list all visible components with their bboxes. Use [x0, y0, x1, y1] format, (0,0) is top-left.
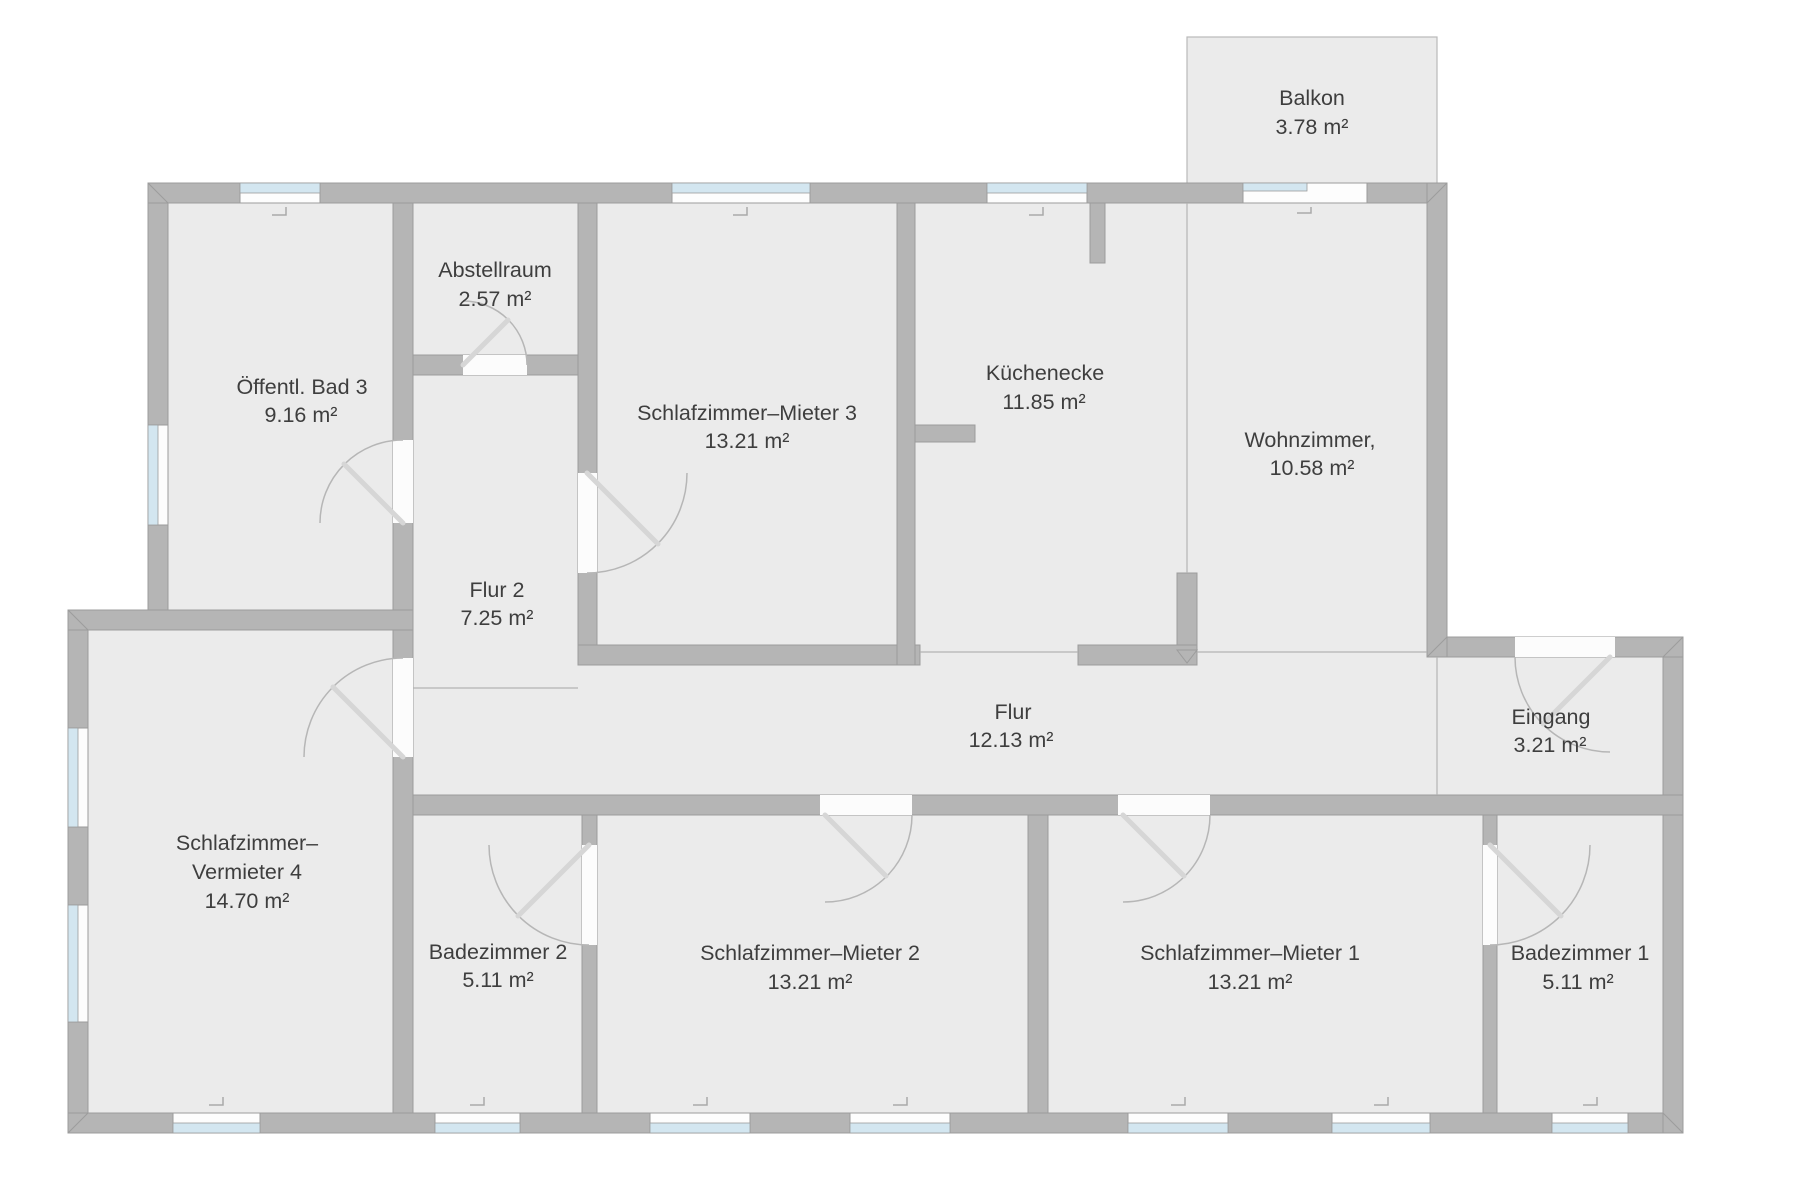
room-area-label: 2.57 m²	[459, 287, 532, 311]
window-symbol	[68, 728, 88, 827]
window-symbol	[240, 183, 320, 203]
room-name-label: Badezimmer 2	[429, 940, 568, 964]
room-area-label: 7.25 m²	[461, 606, 534, 630]
window-symbol	[435, 1113, 520, 1133]
floor-plan-page: Balkon 3.78 m² Öffentl. Bad 3 9.16 m² Ab…	[0, 0, 1802, 1183]
window-symbol	[1332, 1113, 1430, 1133]
window-symbol	[650, 1113, 750, 1133]
window-symbol	[987, 183, 1087, 203]
room-area-label: 5.11 m²	[462, 968, 533, 992]
balcony-outline	[1187, 37, 1437, 185]
room-area-label: 3.21 m²	[1514, 733, 1587, 757]
room-area-label: 10.58 m²	[1270, 456, 1355, 480]
room-area-label: 11.85 m²	[1002, 390, 1085, 414]
room-name-label: Schlafzimmer–Mieter 3	[637, 401, 857, 425]
room-area-label: 3.78 m²	[1276, 115, 1349, 139]
room-name-label: Schlafzimmer–Mieter 2	[700, 941, 920, 965]
room-name-label: Badezimmer 1	[1511, 941, 1650, 965]
room-name-label: Abstellraum	[438, 258, 552, 282]
room-name-label: Balkon	[1279, 86, 1345, 110]
room-area-label: 13.21 m²	[768, 970, 853, 994]
room-name-label: Eingang	[1512, 705, 1591, 729]
room-name-label: Wohnzimmer,	[1244, 428, 1375, 452]
room-name-label: Vermieter 4	[192, 860, 302, 884]
window-symbol	[850, 1113, 950, 1133]
room-area-label: 9.16 m²	[265, 403, 338, 427]
window-symbol	[148, 425, 168, 525]
window-symbol	[68, 905, 88, 1022]
room-area-label: 13.21 m²	[1208, 970, 1293, 994]
room-area-label: 14.70 m²	[205, 889, 290, 913]
window-symbol	[173, 1113, 260, 1133]
room-name-label: Küchenecke	[986, 361, 1104, 385]
room-area-label: 13.21 m²	[705, 429, 790, 453]
room-name-label: Schlafzimmer–Mieter 1	[1140, 941, 1360, 965]
room-name-label: Öffentl. Bad 3	[236, 375, 367, 399]
window-symbol	[1552, 1113, 1628, 1133]
room-name-label: Flur 2	[470, 578, 525, 602]
window-symbol	[1128, 1113, 1228, 1133]
room-name-label: Flur	[994, 700, 1031, 724]
room-area-label: 5.11 m²	[1542, 970, 1613, 994]
floor-plan-canvas: Balkon 3.78 m² Öffentl. Bad 3 9.16 m² Ab…	[0, 0, 1802, 1183]
room-name-label: Schlafzimmer–	[176, 831, 318, 855]
balcony-door-symbol	[1243, 183, 1367, 203]
room-area-label: 12.13 m²	[969, 728, 1054, 752]
window-symbol	[672, 183, 810, 203]
